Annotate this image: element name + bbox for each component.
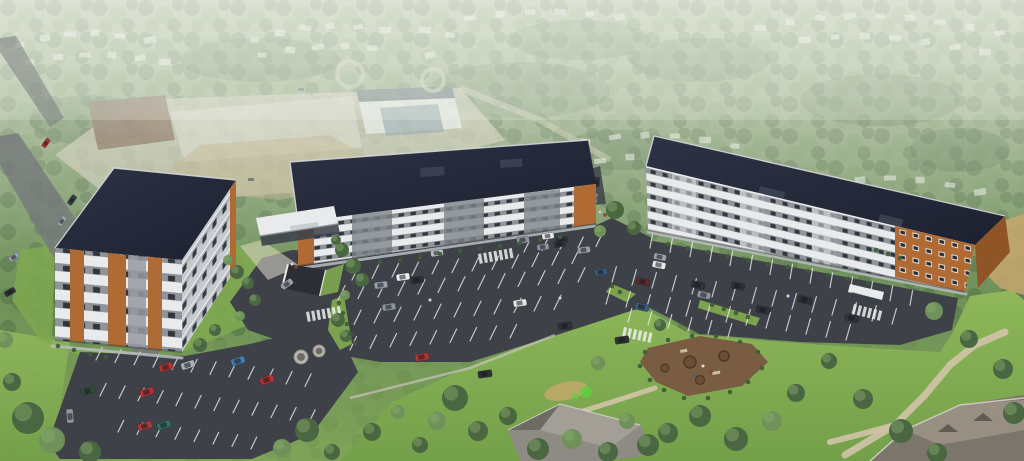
bush — [666, 242, 671, 247]
bush — [337, 301, 342, 306]
bush — [378, 260, 383, 265]
person — [294, 265, 297, 268]
fire-pit — [684, 356, 696, 368]
bush — [866, 281, 871, 286]
person — [786, 294, 789, 297]
bush — [682, 396, 687, 401]
bush — [518, 241, 523, 246]
bush — [104, 355, 109, 360]
bush — [618, 290, 623, 295]
bush — [498, 244, 503, 249]
bush — [766, 262, 771, 267]
bush — [558, 235, 563, 240]
bush — [341, 311, 346, 316]
bush — [886, 252, 891, 257]
bush — [538, 238, 543, 243]
person — [693, 373, 696, 376]
bush — [690, 334, 695, 339]
car — [66, 409, 74, 424]
bush — [478, 246, 483, 251]
bush — [662, 388, 667, 393]
bush — [846, 277, 851, 282]
bush — [786, 265, 791, 270]
fire-pit — [719, 351, 729, 361]
bush — [706, 396, 711, 401]
bush — [728, 390, 733, 395]
bush — [686, 246, 691, 251]
bush — [458, 249, 463, 254]
bush — [826, 273, 831, 278]
bush — [610, 284, 615, 289]
bush — [710, 303, 715, 308]
bush — [438, 252, 443, 257]
person — [603, 213, 606, 216]
bush — [345, 322, 350, 327]
bush — [56, 344, 61, 349]
person — [709, 370, 712, 373]
person — [790, 297, 793, 300]
bush — [706, 250, 711, 255]
bush — [734, 311, 739, 316]
bush — [714, 334, 719, 339]
scene-svg — [0, 0, 1024, 461]
bush — [746, 380, 751, 385]
bush — [398, 258, 403, 263]
bush — [874, 248, 879, 253]
bush — [898, 256, 903, 261]
bush — [666, 338, 671, 343]
bush — [418, 255, 423, 260]
person — [428, 298, 431, 301]
bush — [638, 364, 643, 369]
person — [701, 364, 704, 367]
aerial-rendering — [0, 0, 1024, 461]
haze-top — [0, 0, 1024, 120]
bush — [738, 340, 743, 345]
bush — [746, 258, 751, 263]
bush — [648, 378, 653, 383]
bush — [746, 315, 751, 320]
bush — [88, 352, 93, 357]
bush — [349, 332, 354, 337]
bush — [722, 307, 727, 312]
bush — [726, 254, 731, 259]
person — [598, 210, 601, 213]
bright-green-spot — [580, 386, 592, 398]
bush — [806, 269, 811, 274]
bush — [643, 350, 648, 355]
person — [558, 296, 561, 299]
bush — [756, 350, 761, 355]
bush — [760, 366, 765, 371]
person — [290, 262, 293, 265]
bush — [72, 348, 77, 353]
bush — [353, 341, 358, 346]
